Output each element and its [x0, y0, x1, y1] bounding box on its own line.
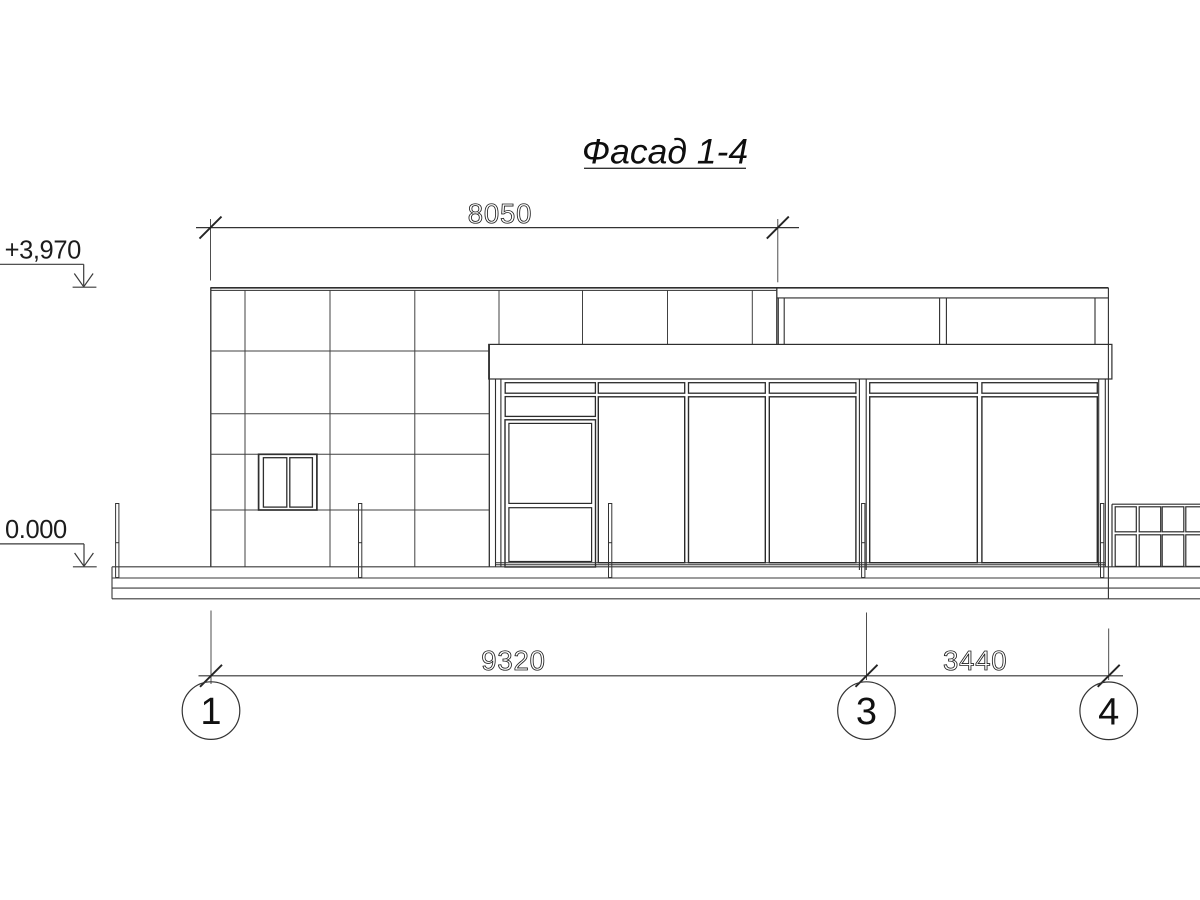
svg-text:9320: 9320: [481, 645, 545, 676]
svg-text:+3,970: +3,970: [5, 237, 82, 265]
svg-text:Фасад 1-4: Фасад 1-4: [582, 132, 748, 172]
svg-text:3: 3: [856, 691, 877, 733]
svg-text:1: 1: [200, 691, 221, 733]
svg-text:4: 4: [1098, 691, 1119, 733]
svg-text:0.000: 0.000: [5, 516, 67, 544]
svg-text:8050: 8050: [468, 198, 532, 229]
svg-text:3440: 3440: [943, 645, 1007, 676]
